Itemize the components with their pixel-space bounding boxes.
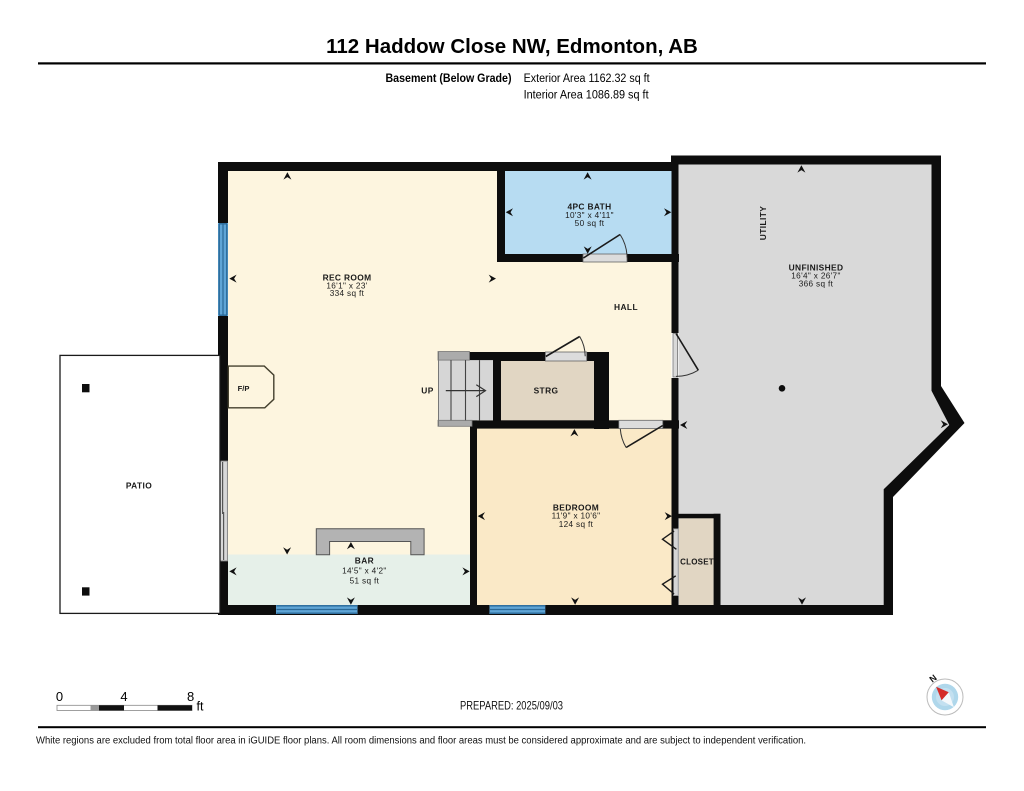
svg-text:PREPARED: 2025/09/03: PREPARED: 2025/09/03 [460, 698, 563, 712]
svg-text:4: 4 [120, 689, 127, 704]
svg-text:PATIO: PATIO [126, 481, 152, 491]
svg-text:0: 0 [56, 689, 63, 704]
svg-text:8: 8 [187, 689, 194, 704]
svg-text:F/P: F/P [238, 384, 250, 393]
svg-text:White regions are excluded fro: White regions are excluded from total fl… [36, 736, 806, 747]
svg-text:Basement (Below Grade): Basement (Below Grade) [386, 73, 512, 85]
svg-text:14'5" x 4'2": 14'5" x 4'2" [342, 567, 387, 576]
svg-text:UTILITY: UTILITY [758, 206, 768, 240]
svg-text:334 sq ft: 334 sq ft [330, 289, 365, 298]
svg-text:BAR: BAR [355, 555, 374, 565]
svg-text:51 sq ft: 51 sq ft [350, 577, 380, 586]
svg-text:UP: UP [421, 386, 433, 396]
svg-text:124 sq ft: 124 sq ft [559, 520, 594, 529]
svg-text:Exterior Area 1162.32 sq ft: Exterior Area 1162.32 sq ft [524, 73, 651, 85]
svg-text:Interior Area 1086.89 sq ft: Interior Area 1086.89 sq ft [524, 90, 650, 102]
svg-text:50 sq ft: 50 sq ft [575, 219, 605, 228]
svg-text:STRG: STRG [534, 385, 559, 395]
svg-text:112 Haddow Close NW, Edmonton,: 112 Haddow Close NW, Edmonton, AB [326, 35, 698, 58]
svg-text:366 sq ft: 366 sq ft [799, 279, 834, 288]
svg-text:CLOSET: CLOSET [680, 558, 714, 567]
svg-text:ft: ft [197, 700, 204, 714]
svg-text:HALL: HALL [614, 302, 638, 312]
